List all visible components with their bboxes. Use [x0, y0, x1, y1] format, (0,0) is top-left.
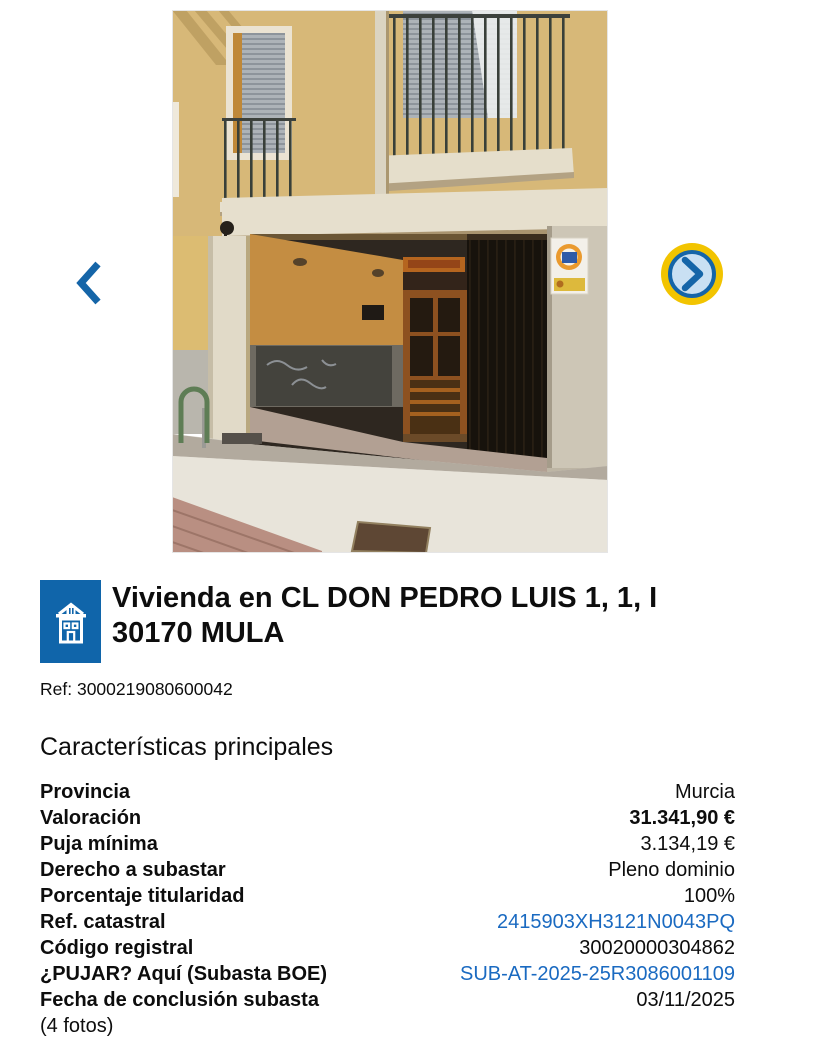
listing-reference: Ref: 3000219080600042: [40, 679, 735, 700]
row-label: Ref. catastral: [40, 909, 166, 935]
title-line-2: 30170 MULA: [112, 616, 657, 651]
row-label: Porcentaje titularidad: [40, 883, 245, 909]
table-row: Fecha de conclusión subasta 03/11/2025: [40, 987, 735, 1013]
chevron-left-icon: [74, 259, 104, 307]
property-photo: [172, 10, 608, 553]
row-label: ¿PUJAR? Aquí (Subasta BOE): [40, 961, 327, 987]
row-label: Derecho a subastar: [40, 857, 226, 883]
row-value: 3.134,19 €: [640, 831, 735, 857]
row-value: 30020000304862: [579, 935, 735, 961]
listing-header: Vivienda en CL DON PEDRO LUIS 1, 1, I 30…: [40, 580, 735, 663]
property-photo-image: [172, 10, 608, 553]
page: { "gallery": { "prev_icon": "chevron-lef…: [0, 0, 820, 1037]
prev-photo-button[interactable]: [74, 259, 104, 307]
table-row: Porcentaje titularidad 100%: [40, 883, 735, 909]
chevron-right-icon: [679, 256, 705, 292]
table-row: ¿PUJAR? Aquí (Subasta BOE) SUB-AT-2025-2…: [40, 961, 735, 987]
table-row: Derecho a subastar Pleno dominio: [40, 857, 735, 883]
photo-count: (4 fotos): [40, 1013, 735, 1039]
row-label: Fecha de conclusión subasta: [40, 987, 319, 1013]
listing-detail: Vivienda en CL DON PEDRO LUIS 1, 1, I 30…: [0, 580, 820, 1039]
title-line-1: Vivienda en CL DON PEDRO LUIS 1, 1, I: [112, 581, 657, 616]
page-title: Vivienda en CL DON PEDRO LUIS 1, 1, I 30…: [112, 580, 657, 651]
next-photo-button[interactable]: [668, 250, 716, 298]
characteristics-table: Provincia Murcia Valoración 31.341,90 € …: [40, 779, 735, 1013]
table-row: Código registral 30020000304862: [40, 935, 735, 961]
building-icon: [40, 580, 101, 663]
boe-auction-link[interactable]: SUB-AT-2025-25R3086001109: [460, 961, 735, 987]
row-value: 31.341,90 €: [629, 805, 735, 831]
table-row: Ref. catastral 2415903XH3121N0043PQ: [40, 909, 735, 935]
row-value: 03/11/2025: [636, 987, 735, 1013]
table-row: Puja mínima 3.134,19 €: [40, 831, 735, 857]
characteristics-heading: Características principales: [40, 733, 735, 762]
table-row: Valoración 31.341,90 €: [40, 805, 735, 831]
table-row: Provincia Murcia: [40, 779, 735, 805]
photo-gallery: [0, 0, 820, 570]
row-label: Provincia: [40, 779, 130, 805]
row-label: Código registral: [40, 935, 193, 961]
cadastral-ref-link[interactable]: 2415903XH3121N0043PQ: [497, 909, 735, 935]
row-label: Puja mínima: [40, 831, 158, 857]
row-value: 100%: [684, 883, 735, 909]
row-value: Murcia: [675, 779, 735, 805]
row-label: Valoración: [40, 805, 141, 831]
row-value: Pleno dominio: [608, 857, 735, 883]
